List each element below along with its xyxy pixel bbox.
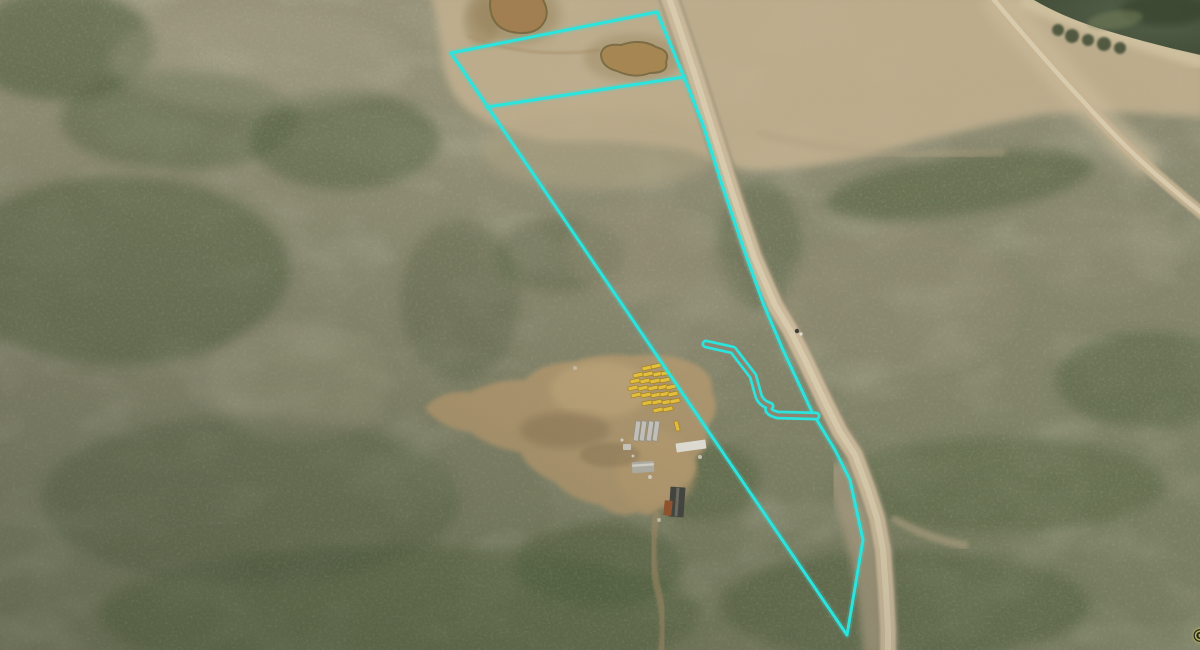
aerial-map-viewport[interactable]: © [0, 0, 1200, 650]
copyright-mark: © [1191, 626, 1200, 647]
aerial-imagery [0, 0, 1200, 650]
photo-grain [0, 0, 1200, 650]
